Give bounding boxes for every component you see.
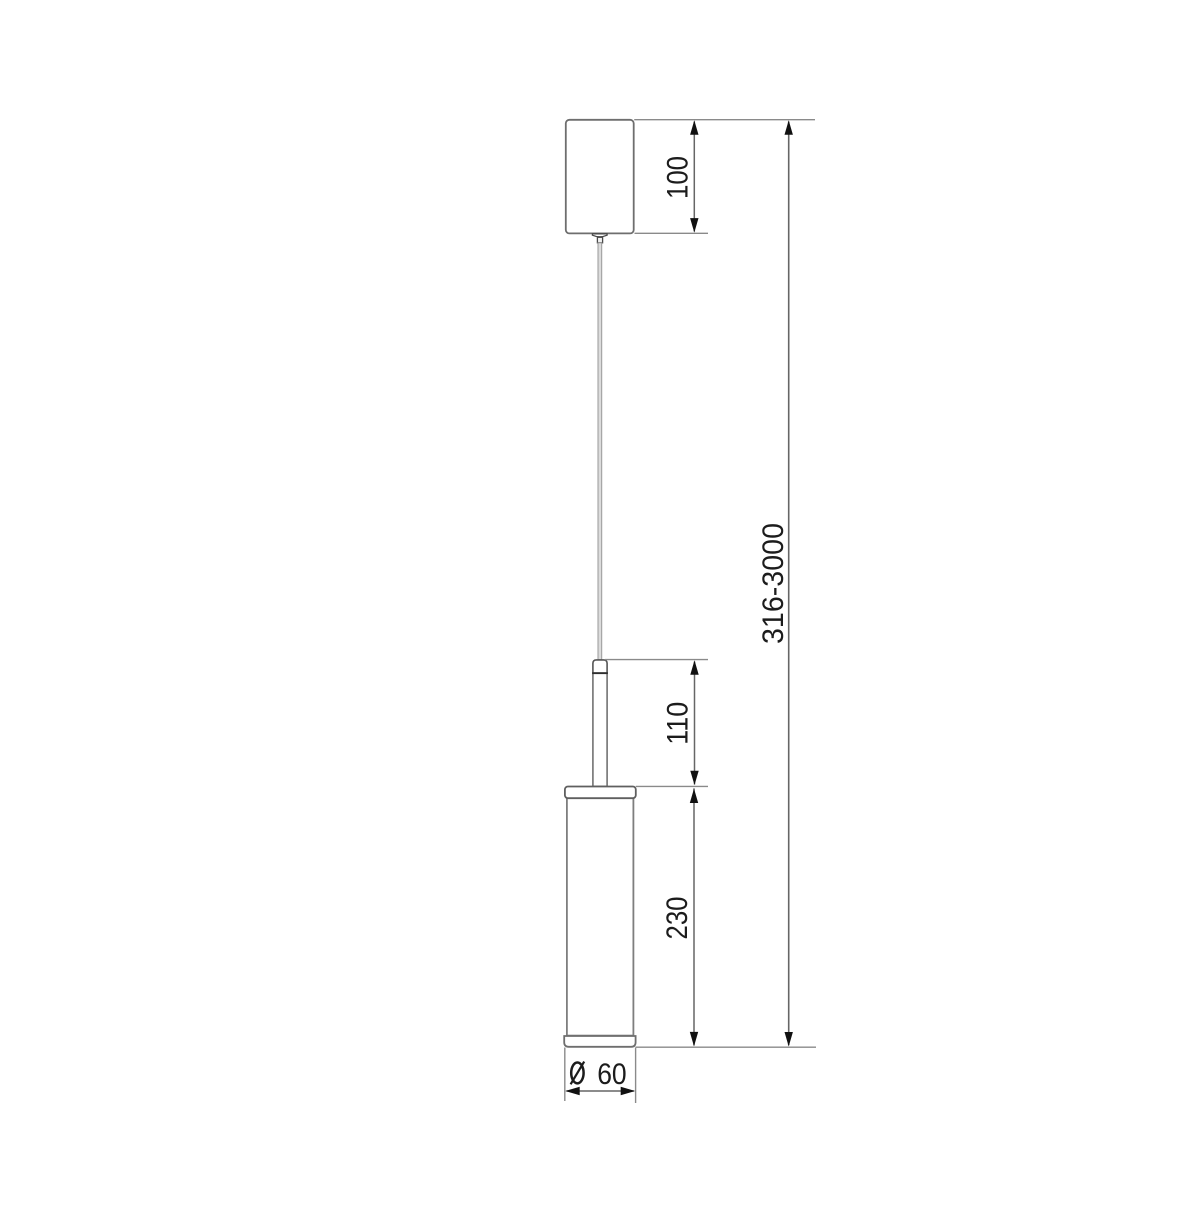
svg-text:60: 60 — [597, 1058, 627, 1091]
svg-text:100: 100 — [662, 156, 695, 199]
svg-text:110: 110 — [662, 702, 695, 745]
svg-text:316-3000: 316-3000 — [757, 523, 790, 644]
svg-text:230: 230 — [661, 897, 694, 940]
